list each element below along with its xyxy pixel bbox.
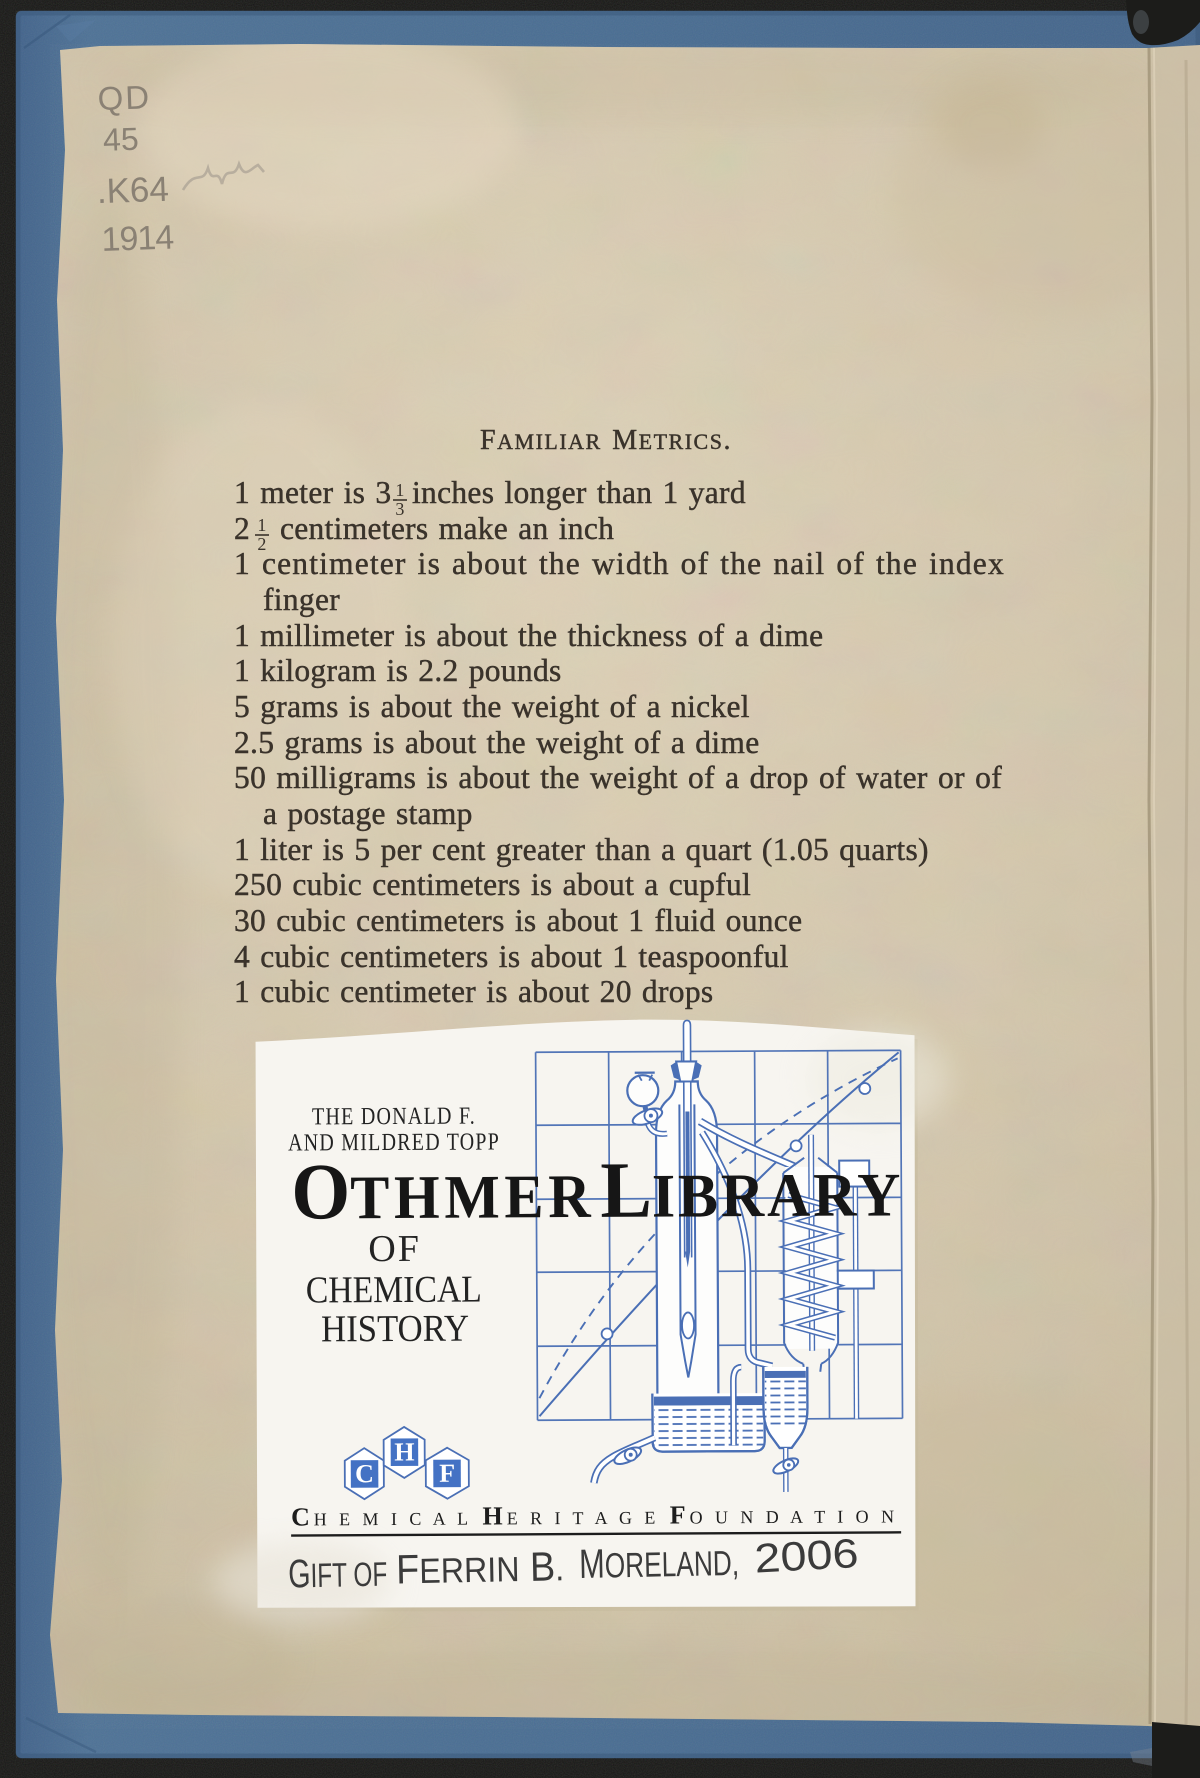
svg-text:1 kilogram is 2.2 pounds: 1 kilogram is 2.2 pounds bbox=[234, 653, 562, 688]
svg-text:1: 1 bbox=[257, 515, 266, 535]
svg-text:THE DONALD F.: THE DONALD F. bbox=[312, 1103, 476, 1131]
svg-text:.K64: .K64 bbox=[96, 170, 169, 211]
svg-text:45: 45 bbox=[102, 121, 139, 158]
svg-text:1: 1 bbox=[395, 480, 404, 500]
svg-text:1 cubic centimeter is about 20: 1 cubic centimeter is about 20 drops bbox=[234, 974, 713, 1009]
svg-text:centimeters make an inch: centimeters make an inch bbox=[280, 511, 614, 546]
svg-text:3: 3 bbox=[395, 499, 404, 519]
svg-text:250 cubic centimeters is about: 250 cubic centimeters is about a cupful bbox=[234, 867, 751, 902]
svg-text:1 liter is 5 per cent greater: 1 liter is 5 per cent greater than a qua… bbox=[234, 832, 929, 867]
svg-text:1 millimeter is about the thic: 1 millimeter is about the thickness of a… bbox=[234, 618, 823, 653]
svg-text:H: H bbox=[394, 1437, 414, 1466]
svg-text:2: 2 bbox=[234, 511, 250, 546]
svg-text:1 meter is 3: 1 meter is 3 bbox=[234, 475, 391, 510]
svg-text:C: C bbox=[355, 1459, 374, 1488]
svg-text:HISTORY: HISTORY bbox=[321, 1308, 469, 1351]
svg-text:2: 2 bbox=[257, 534, 266, 554]
svg-text:OF: OF bbox=[368, 1228, 421, 1270]
svg-text:GIFT OF: GIFT OF bbox=[288, 1551, 388, 1597]
svg-text:inches longer than 1 yard: inches longer than 1 yard bbox=[412, 475, 746, 510]
svg-text:QD: QD bbox=[97, 78, 152, 117]
svg-text:1 centimeter is about the widt: 1 centimeter is about the width of the n… bbox=[234, 546, 1004, 581]
svg-text:1914: 1914 bbox=[101, 219, 174, 259]
svg-text:30 cubic centimeters is about: 30 cubic centimeters is about 1 fluid ou… bbox=[234, 903, 802, 938]
svg-text:2006: 2006 bbox=[753, 1530, 859, 1582]
svg-text:FAMILIAR METRICS.: FAMILIAR METRICS. bbox=[480, 425, 732, 456]
svg-text:CHEMICAL: CHEMICAL bbox=[306, 1269, 482, 1312]
svg-text:2.5 grams is about the weight: 2.5 grams is about the weight of a dime bbox=[234, 725, 759, 760]
svg-text:F: F bbox=[439, 1459, 455, 1488]
svg-text:MORELAND,: MORELAND, bbox=[579, 1538, 740, 1587]
svg-text:4 cubic centimeters is about 1: 4 cubic centimeters is about 1 teaspoonf… bbox=[234, 939, 789, 974]
svg-text:50 milligrams is about the wei: 50 milligrams is about the weight of a d… bbox=[234, 760, 1002, 795]
svg-text:5 grams is about the weight of: 5 grams is about the weight of a nickel bbox=[234, 689, 750, 724]
svg-text:a postage stamp: a postage stamp bbox=[263, 796, 473, 831]
svg-text:finger: finger bbox=[263, 582, 340, 617]
